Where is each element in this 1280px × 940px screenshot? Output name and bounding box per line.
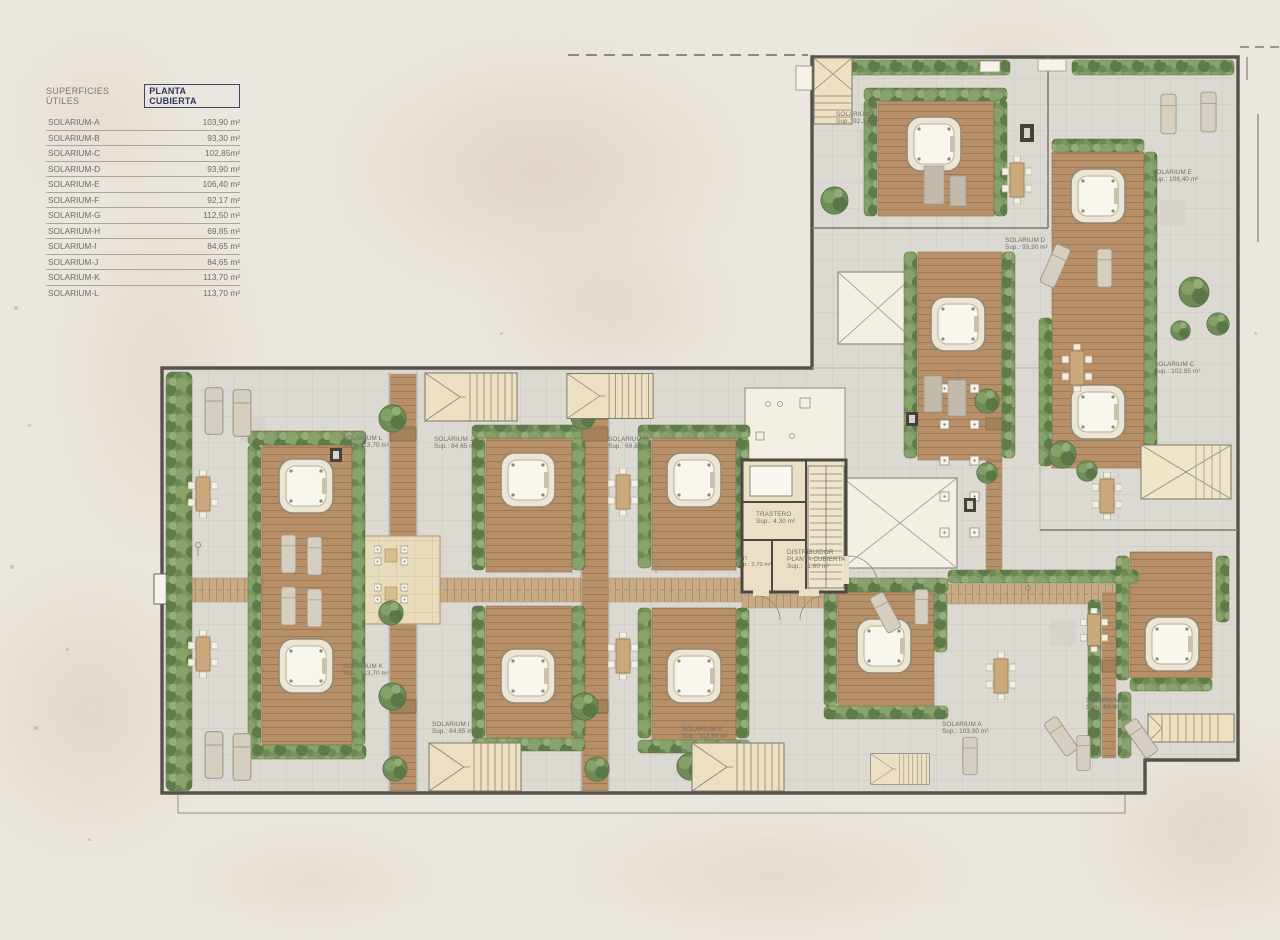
legend-row-label: SOLARIUM-A [48,117,100,127]
legend-row-label: SOLARIUM-F [48,195,99,205]
legend-row: SOLARIUM-A103,90 m² [46,115,240,131]
label-solarium-a: SOLARIUM ASup.: 103,90 m² [942,721,988,735]
legend-row-value: 84,65 m² [207,241,240,251]
door-gap [799,589,819,596]
legend-row-label: SOLARIUM-G [48,210,101,220]
lower-facade-outline [178,795,1125,813]
legend-row: SOLARIUM-E106,40 m² [46,177,240,193]
legend-row-value: 69,85 m² [207,226,240,236]
legend-row-label: SOLARIUM-E [48,179,100,189]
legend: SUPERFICIES ÚTILES PLANTA CUBIERTA SOLAR… [46,84,240,300]
court-above-core [745,388,845,460]
legend-row-label: SOLARIUM-L [48,288,99,298]
legend-row-label: SOLARIUM-I [48,241,96,251]
label-solarium-i: SOLARIUM ISup.: 84,65 m² [432,721,475,735]
label-solarium-j: SOLARIUM JSup.: 84,65 m² [434,436,477,450]
legend-row-value: 102,85m² [205,148,240,158]
label-solarium-e: SOLARIUM ESup.: 106,40 m² [1152,169,1198,183]
legend-row-value: 84,65 m² [207,257,240,267]
legend-row-label: SOLARIUM-B [48,133,100,143]
legend-row: SOLARIUM-L113,70 m² [46,286,240,301]
legend-row-value: 106,40 m² [203,179,240,189]
legend-row: SOLARIUM-F92,17 m² [46,193,240,209]
legend-header: SUPERFICIES ÚTILES PLANTA CUBIERTA [46,84,240,108]
legend-row-value: 112,50 m² [203,210,240,220]
legend-row: SOLARIUM-I84,65 m² [46,239,240,255]
label-solarium-c: SOLARIUM CSup.: 102,85 m² [1154,361,1200,375]
legend-row-value: 113,70 m² [203,288,240,298]
legend-row: SOLARIUM-B93,30 m² [46,131,240,147]
floor-plan-page: SUPERFICIES ÚTILES PLANTA CUBIERTA SOLAR… [0,0,1280,905]
plan-name-badge: PLANTA CUBIERTA [144,84,240,108]
legend-row: SOLARIUM-H69,85 m² [46,224,240,240]
legend-row-label: SOLARIUM-C [48,148,100,158]
legend-title: SUPERFICIES ÚTILES [46,86,144,106]
legend-row-label: SOLARIUM-D [48,164,100,174]
legend-row-value: 113,70 m² [203,272,240,282]
label-riti: RITISup.: 2,70 m² [736,556,771,569]
label-solarium-g: SOLARIUM GSup.: 112,50 m² [682,726,728,740]
label-solarium-d: SOLARIUM DSup.: 93,90 m² [1005,237,1048,251]
legend-row-value: 93,90 m² [207,164,240,174]
legend-row-value: 103,90 m² [203,117,240,127]
legend-row-value: 93,30 m² [207,133,240,143]
label-solarium-k: SOLARIUM KSup.: 113,70 m² [343,663,389,677]
legend-row: SOLARIUM-C102,85m² [46,146,240,162]
label-solarium-h: SOLARIUM HSup.: 69,85 m² [608,436,651,450]
elevator [750,466,792,496]
legend-row-label: SOLARIUM-J [48,257,98,267]
legend-row-label: SOLARIUM-H [48,226,100,236]
label-solarium-l: SOLARIUM LSup.: 113,70 m² [343,435,389,449]
legend-row: SOLARIUM-D93,90 m² [46,162,240,178]
door-gap [753,589,769,596]
stair-run-b [1148,714,1234,742]
legend-row: SOLARIUM-G112,50 m² [46,208,240,224]
label-trastero: TRASTEROSup.: 4,30 m² [756,511,795,525]
skylight-court-central [843,478,957,568]
label-solarium-b: SOLARIUM BSup.: 93,30 m² [1086,697,1129,711]
legend-row: SOLARIUM-J84,65 m² [46,255,240,271]
legend-row-value: 92,17 m² [207,195,240,205]
label-solarium-f: SOLARIUM FSup.: 92,17 m² [836,111,879,125]
label-distribuidor: DISTRIBUIDORPLANTA CUBIERTASup.: 11,60 m… [787,549,845,571]
legend-row: SOLARIUM-K113,70 m² [46,270,240,286]
legend-row-label: SOLARIUM-K [48,272,100,282]
north-niche [796,66,812,90]
